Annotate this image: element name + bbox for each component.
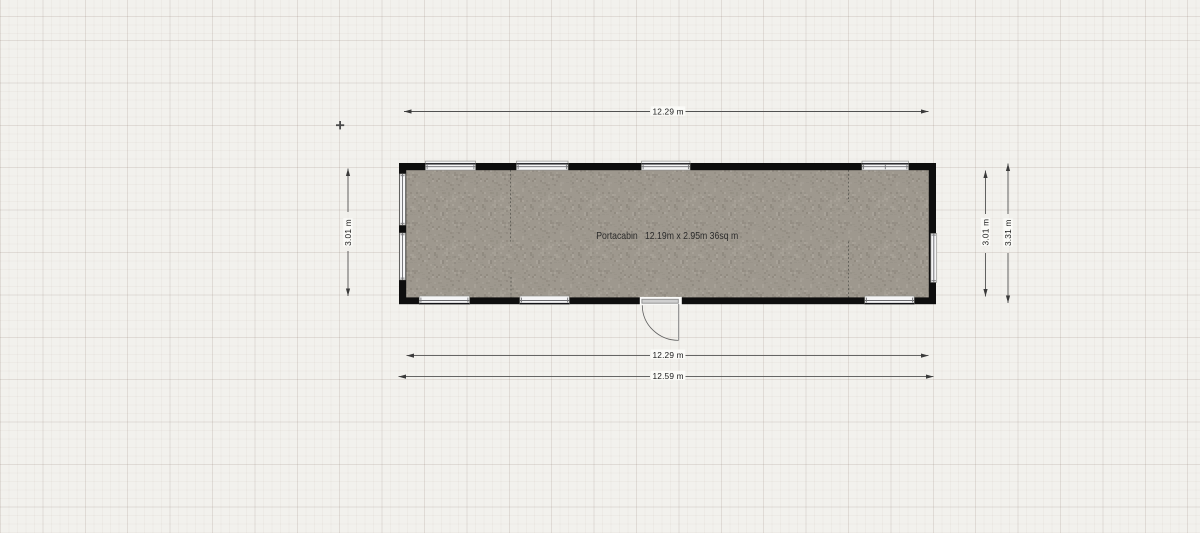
svg-text:3.01 m: 3.01 m: [981, 219, 991, 246]
svg-text:12.29 m: 12.29 m: [653, 107, 684, 117]
svg-text:3.31 m: 3.31 m: [1003, 219, 1013, 246]
svg-text:12.29 m: 12.29 m: [653, 350, 684, 360]
svg-text:12.59 m: 12.59 m: [653, 371, 684, 381]
svg-text:3.01 m: 3.01 m: [343, 219, 353, 246]
svg-text:Portacabin 12.19m x 2.95m 36: Portacabin 12.19m x 2.95m 36sq m: [596, 231, 738, 242]
